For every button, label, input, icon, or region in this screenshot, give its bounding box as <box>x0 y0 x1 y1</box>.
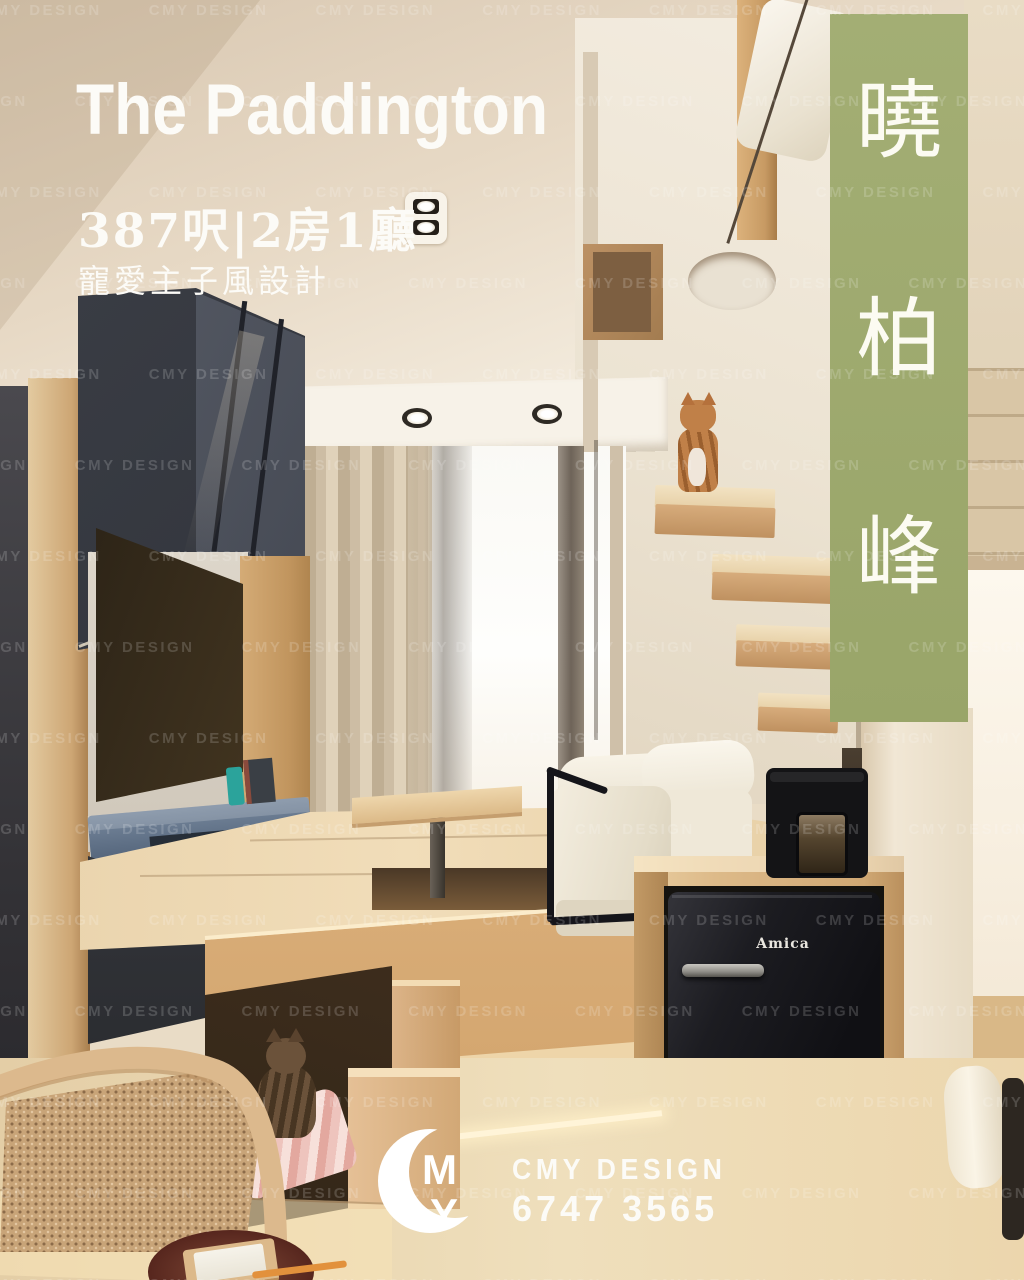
banner-character: 柏 <box>856 296 942 382</box>
window-frame-edge <box>594 440 598 740</box>
poster-tagline: 寵愛主子風設計 <box>78 256 330 302</box>
logo-monogram-y: Y <box>430 1190 458 1237</box>
poster: Amica 曉 柏 峰 CMY DESIGNCMY DESIGNCMY DESI… <box>0 0 1024 1280</box>
cat-walkway-hole <box>688 252 776 310</box>
storage-bin <box>942 1064 1008 1190</box>
banner-character: 峰 <box>856 514 942 600</box>
cat-shelf-edge <box>655 504 776 538</box>
logo-monogram-m: M <box>422 1146 457 1193</box>
coffee-maker-lid <box>770 772 864 782</box>
teal-cup <box>226 766 245 805</box>
poster-subtitle: 387呎|2房1廳 <box>78 192 418 261</box>
cat-ear <box>702 392 716 405</box>
fridge-handle <box>682 964 764 977</box>
recessed-spotlight <box>402 408 432 428</box>
poster-title: The Paddington <box>76 70 548 151</box>
project-name-banner: 曉 柏 峰 <box>830 14 968 722</box>
cat-ear <box>681 392 695 405</box>
hallway-wall <box>964 0 1024 420</box>
banner-character: 曉 <box>856 78 942 164</box>
logo-phone-number: 6747 3565 <box>512 1188 718 1230</box>
cat-shelf-edge <box>758 707 839 734</box>
sofa-frame <box>547 770 554 922</box>
cat-box-shelf <box>583 244 663 340</box>
cat-shelf-edge <box>712 572 839 604</box>
cat-chest <box>688 448 706 486</box>
logo-company-name: CMY DESIGN <box>512 1154 727 1187</box>
table-pedestal <box>430 816 445 898</box>
fridge-reflection <box>672 895 872 898</box>
coffee-carafe <box>796 812 848 876</box>
recessed-spotlight <box>532 404 562 424</box>
fridge-brand-label: Amica <box>740 936 826 952</box>
books <box>243 758 276 804</box>
crescent-logo: M Y <box>378 1116 488 1248</box>
desk-chair <box>1002 1078 1024 1240</box>
cat-shelf-edge <box>736 640 839 670</box>
